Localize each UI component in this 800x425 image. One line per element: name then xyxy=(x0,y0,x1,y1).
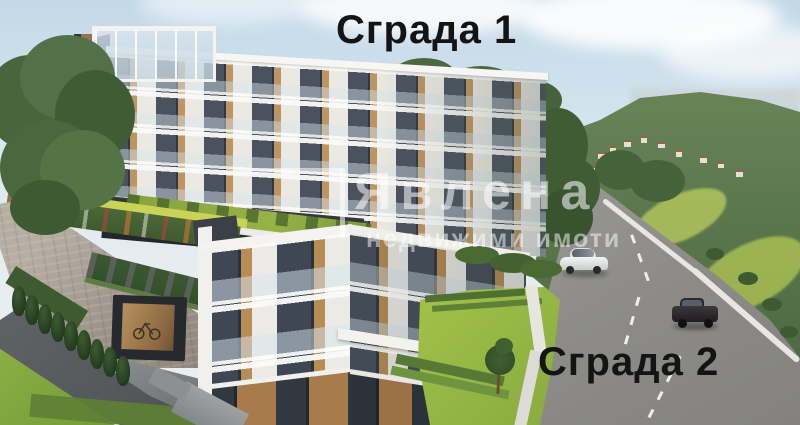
cypress-tree xyxy=(25,295,39,325)
village-house xyxy=(641,136,647,143)
cypress-tree xyxy=(77,330,91,360)
village-house xyxy=(700,156,707,163)
building-2-facade-left xyxy=(204,230,350,425)
car-wheel xyxy=(704,319,713,328)
small-tree xyxy=(495,338,513,354)
shrub xyxy=(706,248,724,260)
cypress-tree xyxy=(38,304,52,334)
village-house xyxy=(658,142,665,148)
watermark-tagline: недвижими имоти xyxy=(366,227,621,252)
garage-entrance xyxy=(111,295,187,362)
car-wheel xyxy=(593,266,601,274)
shrub xyxy=(762,298,782,311)
car-wheel xyxy=(678,319,687,328)
building2-label: Сграда 2 xyxy=(538,340,719,385)
cypress-tree xyxy=(51,312,65,342)
village-house xyxy=(676,150,682,157)
watermark-bar xyxy=(340,168,345,238)
tree xyxy=(10,180,80,235)
tree xyxy=(630,160,685,202)
cypress-tree xyxy=(90,339,104,369)
shrub xyxy=(738,272,758,285)
hedge-row xyxy=(520,260,562,278)
village-house xyxy=(736,170,743,177)
cypress-tree xyxy=(64,321,78,351)
cypress-tree xyxy=(103,347,117,377)
building1-label: Сграда 1 xyxy=(336,8,517,53)
bicycle-graphic xyxy=(132,319,163,340)
cypress-tree xyxy=(12,286,26,316)
cypress-tree xyxy=(116,356,130,386)
village-house xyxy=(718,162,724,168)
watermark-line xyxy=(252,168,342,174)
shrub xyxy=(780,326,798,338)
car-wheel xyxy=(566,266,574,274)
rendering-image: Явлена недвижими имоти Сграда 1 Сграда 2 xyxy=(0,0,800,425)
village-house xyxy=(624,140,631,147)
car-suv xyxy=(672,298,718,330)
watermark-brand: Явлена xyxy=(354,166,598,218)
